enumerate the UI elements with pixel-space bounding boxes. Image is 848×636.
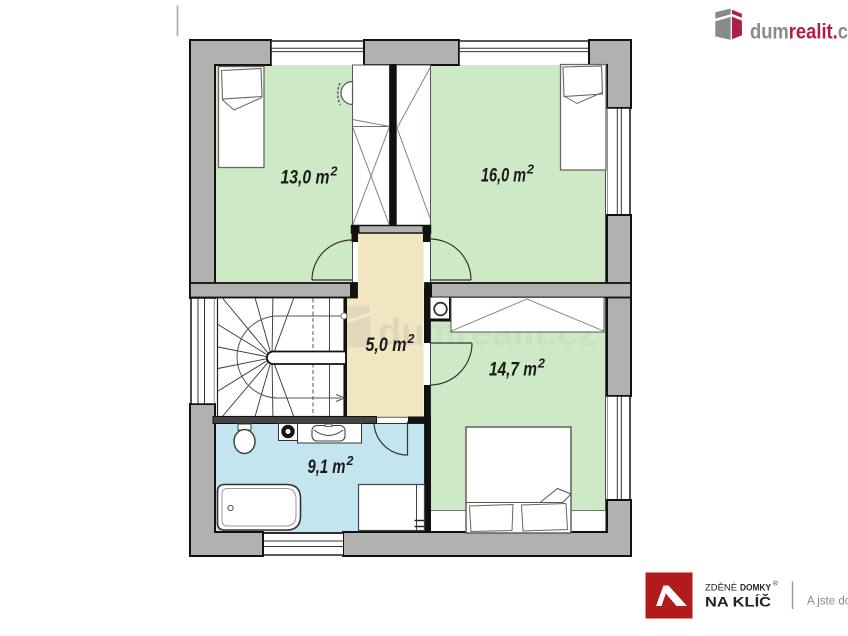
svg-text:DOMKY: DOMKY: [740, 583, 771, 593]
svg-text:2: 2: [346, 454, 354, 468]
svg-text:dumrealit.c: dumrealit.c: [750, 20, 848, 44]
svg-text:14,7 m: 14,7 m: [489, 360, 537, 381]
svg-text:A jste dom: A jste dom: [807, 596, 848, 608]
svg-text:2: 2: [537, 357, 545, 371]
svg-text:16,0 m: 16,0 m: [481, 166, 526, 187]
svg-text:13,0 m: 13,0 m: [281, 168, 330, 189]
svg-text:2: 2: [407, 332, 415, 346]
svg-text:NA KLÍČ: NA KLÍČ: [705, 593, 771, 610]
svg-text:5,0 m: 5,0 m: [366, 335, 407, 356]
svg-text:2: 2: [330, 165, 338, 179]
svg-text:9,1 m: 9,1 m: [308, 457, 346, 478]
svg-text:2: 2: [526, 163, 534, 177]
svg-text:ZDĚNÉ: ZDĚNÉ: [705, 583, 737, 593]
svg-text:®: ®: [773, 580, 778, 588]
